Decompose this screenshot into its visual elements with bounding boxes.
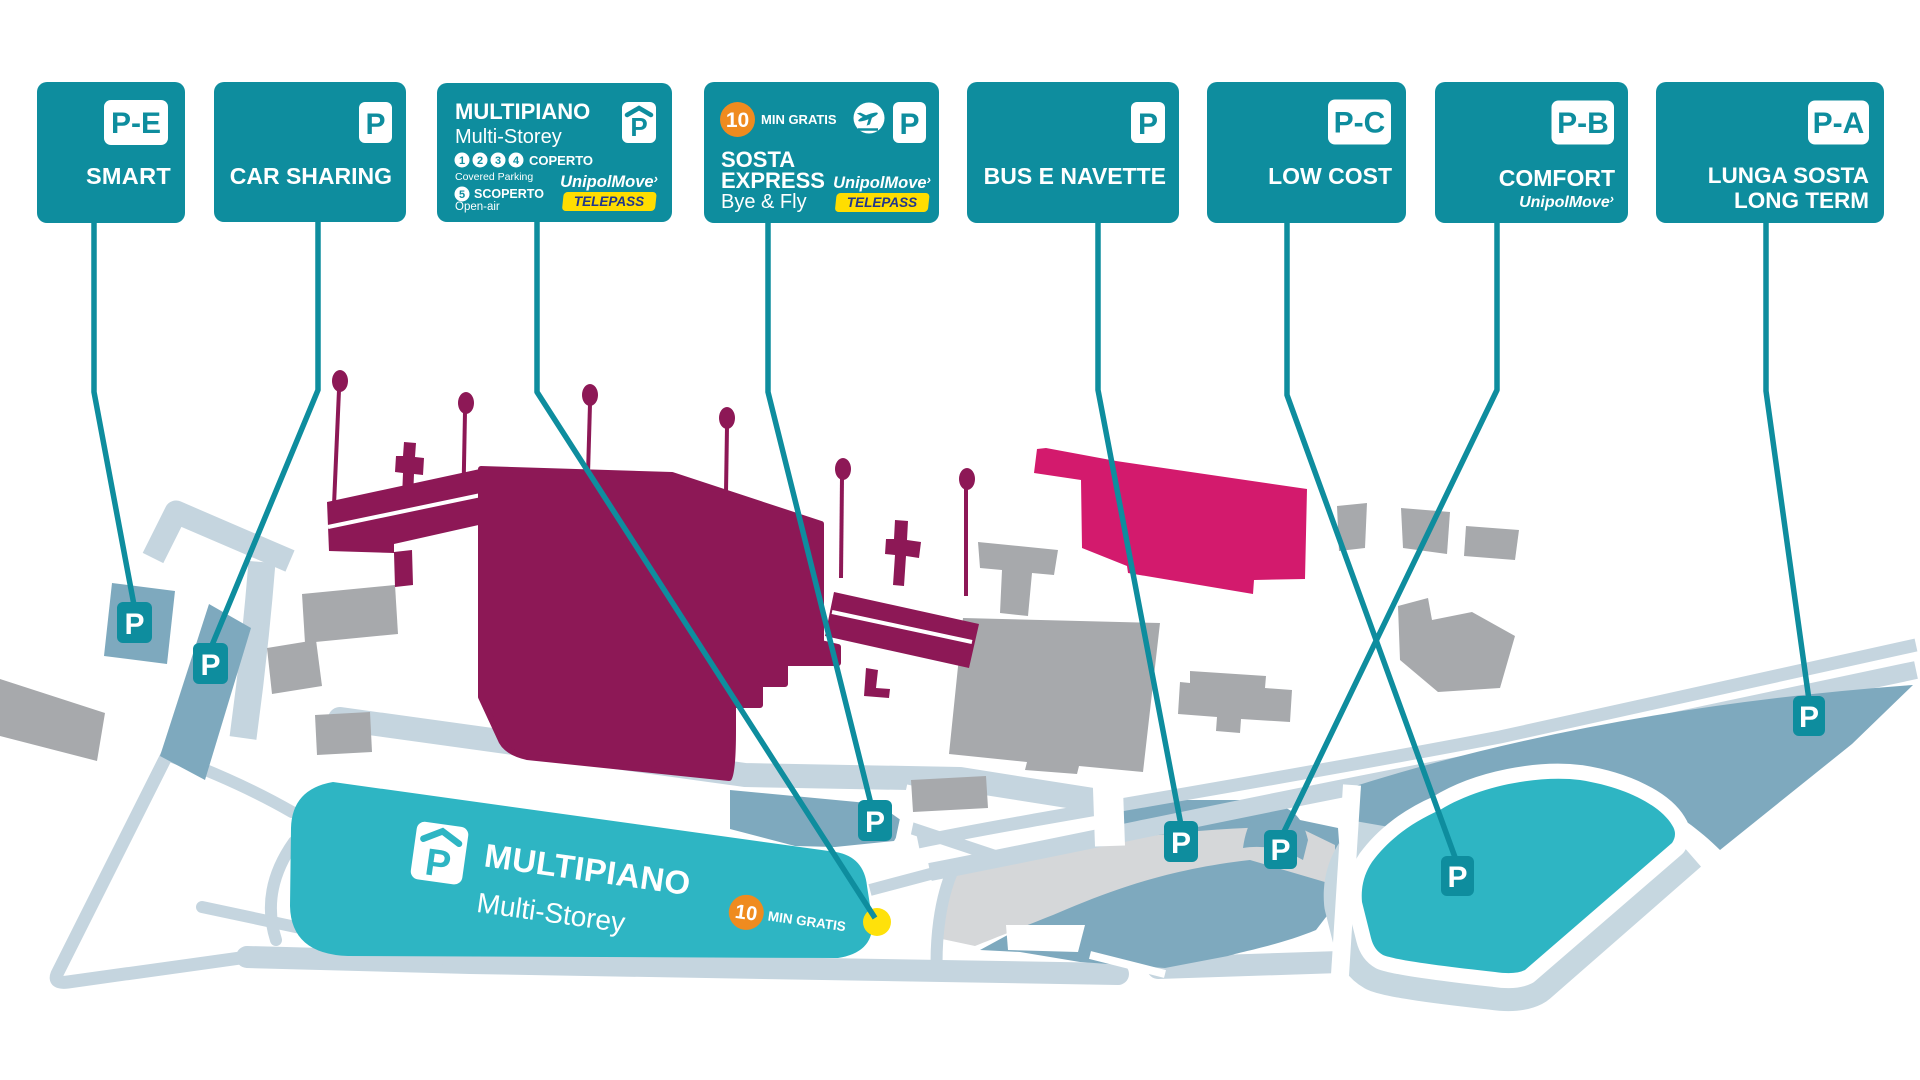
svg-text:P: P <box>1799 701 1819 734</box>
svg-text:LONG TERM: LONG TERM <box>1734 188 1869 213</box>
svg-text:Bye & Fly: Bye & Fly <box>721 191 807 213</box>
svg-text:P: P <box>1171 827 1191 860</box>
svg-text:10: 10 <box>734 901 759 926</box>
svg-text:3: 3 <box>495 155 501 167</box>
svg-text:P: P <box>200 649 220 682</box>
svg-text:P-B: P-B <box>1557 107 1609 140</box>
svg-text:5: 5 <box>459 189 465 201</box>
svg-text:UnipolMove›: UnipolMove› <box>560 171 658 191</box>
svg-text:P: P <box>124 608 144 641</box>
svg-text:P: P <box>865 806 885 839</box>
svg-text:BUS E NAVETTE: BUS E NAVETTE <box>984 163 1166 189</box>
svg-text:P-E: P-E <box>111 107 161 140</box>
svg-text:P: P <box>899 108 919 141</box>
svg-text:COPERTO: COPERTO <box>529 153 593 168</box>
svg-text:Open-air: Open-air <box>455 201 500 213</box>
svg-text:EXPRESS: EXPRESS <box>721 168 825 193</box>
svg-text:SMART: SMART <box>86 163 171 189</box>
svg-text:4: 4 <box>513 155 520 167</box>
svg-text:P: P <box>365 108 385 141</box>
svg-text:P: P <box>1138 108 1158 141</box>
svg-text:P-C: P-C <box>1334 107 1386 140</box>
svg-text:SCOPERTO: SCOPERTO <box>474 187 544 201</box>
svg-text:UnipolMove›: UnipolMove› <box>833 172 931 192</box>
svg-text:P: P <box>1270 834 1290 867</box>
svg-text:Multi-Storey: Multi-Storey <box>455 126 562 148</box>
svg-text:10: 10 <box>726 109 749 132</box>
svg-text:2: 2 <box>477 155 483 167</box>
svg-text:CAR SHARING: CAR SHARING <box>230 163 392 189</box>
svg-text:Covered Parking: Covered Parking <box>455 171 533 183</box>
svg-text:P: P <box>630 112 647 142</box>
svg-text:LOW COST: LOW COST <box>1268 163 1392 189</box>
svg-text:COMFORT: COMFORT <box>1499 165 1615 191</box>
svg-text:TELEPASS: TELEPASS <box>574 194 644 209</box>
svg-text:TELEPASS: TELEPASS <box>847 195 917 210</box>
svg-text:MIN GRATIS: MIN GRATIS <box>761 112 837 127</box>
svg-text:1: 1 <box>459 155 465 167</box>
svg-text:UnipolMove›: UnipolMove› <box>1519 191 1614 211</box>
svg-text:P: P <box>1447 861 1467 894</box>
svg-text:P-A: P-A <box>1813 107 1865 140</box>
svg-text:MULTIPIANO: MULTIPIANO <box>455 99 590 124</box>
svg-text:LUNGA SOSTA: LUNGA SOSTA <box>1708 163 1869 188</box>
